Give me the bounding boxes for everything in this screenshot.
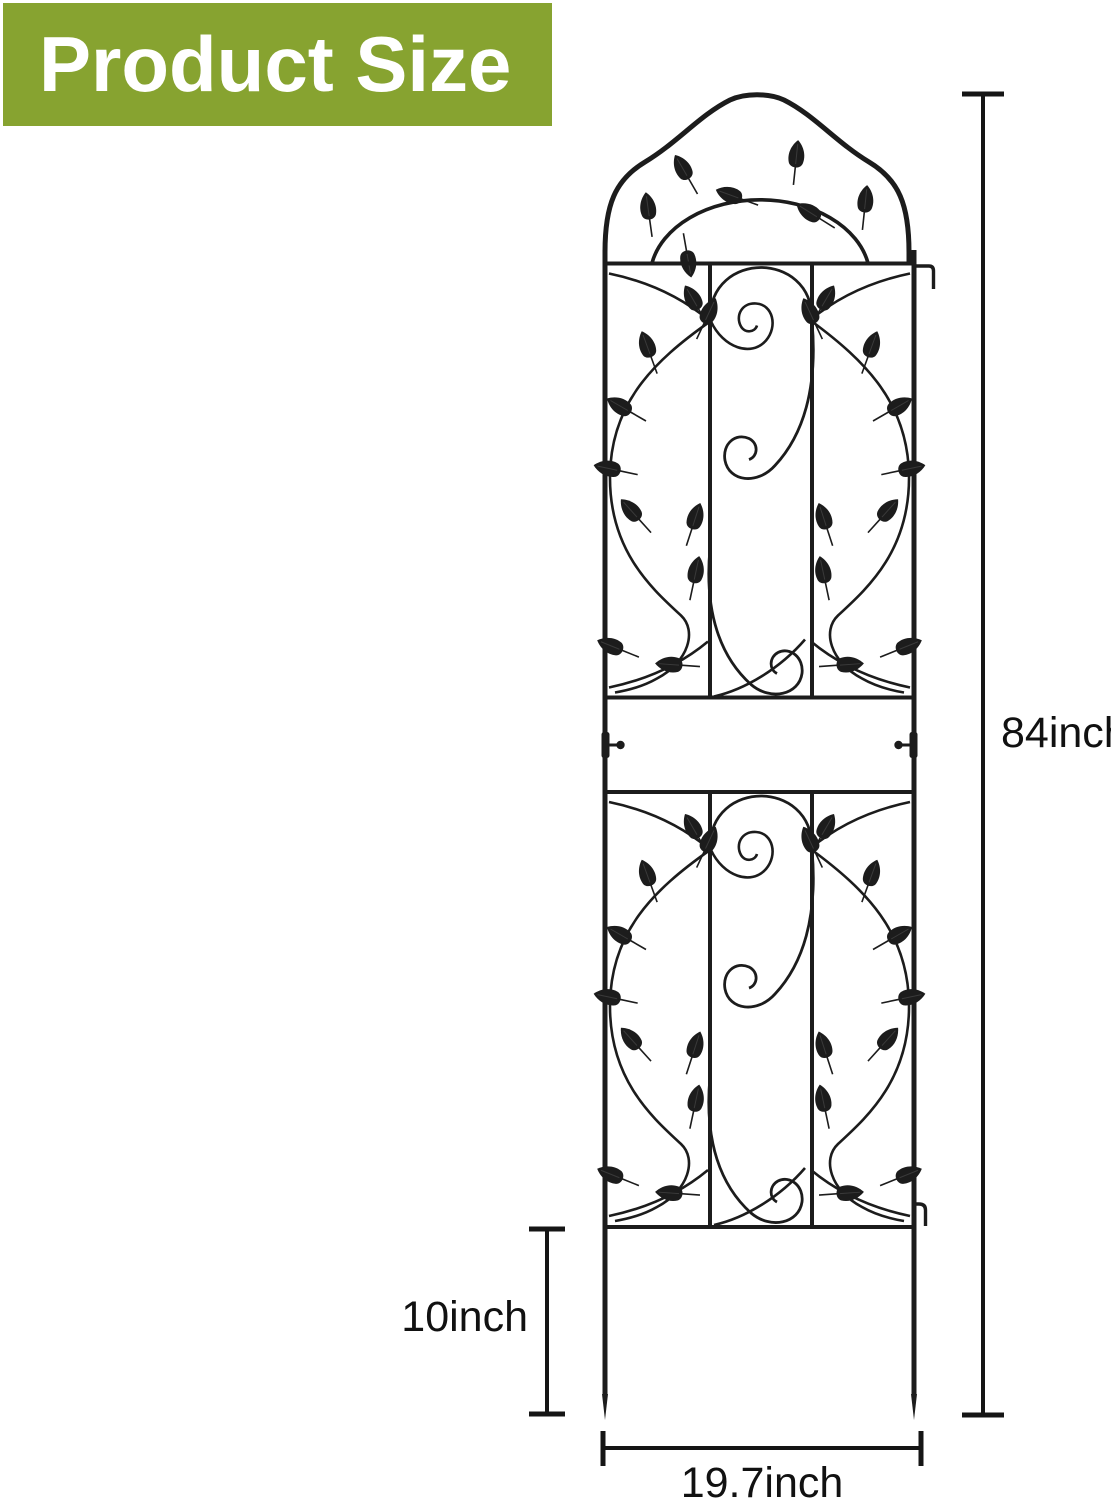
trellis-size-diagram: 84inch 10inch 19.7inch	[0, 0, 1111, 1500]
trellis-panel-upper	[592, 264, 927, 698]
dimension-annotations	[529, 94, 1004, 1466]
trellis-panel-lower	[592, 792, 927, 1226]
page: { "banner": { "title": "Product Size" },…	[0, 0, 1111, 1500]
left-stake-tip	[602, 1394, 608, 1420]
stake-dimension-label: 10inch	[401, 1293, 528, 1341]
height-dimension-line	[962, 94, 1004, 1415]
trellis-frame	[602, 250, 917, 1420]
stake-dimension-line	[529, 1229, 565, 1414]
height-dimension-label: 84inch	[1001, 709, 1111, 757]
trellis-drawing	[592, 95, 933, 1420]
width-dimension-label: 19.7inch	[681, 1459, 844, 1500]
side-hooks	[915, 266, 934, 1226]
connector-knobs	[602, 732, 918, 758]
trellis-arch	[605, 95, 909, 279]
right-stake-tip	[911, 1394, 917, 1420]
